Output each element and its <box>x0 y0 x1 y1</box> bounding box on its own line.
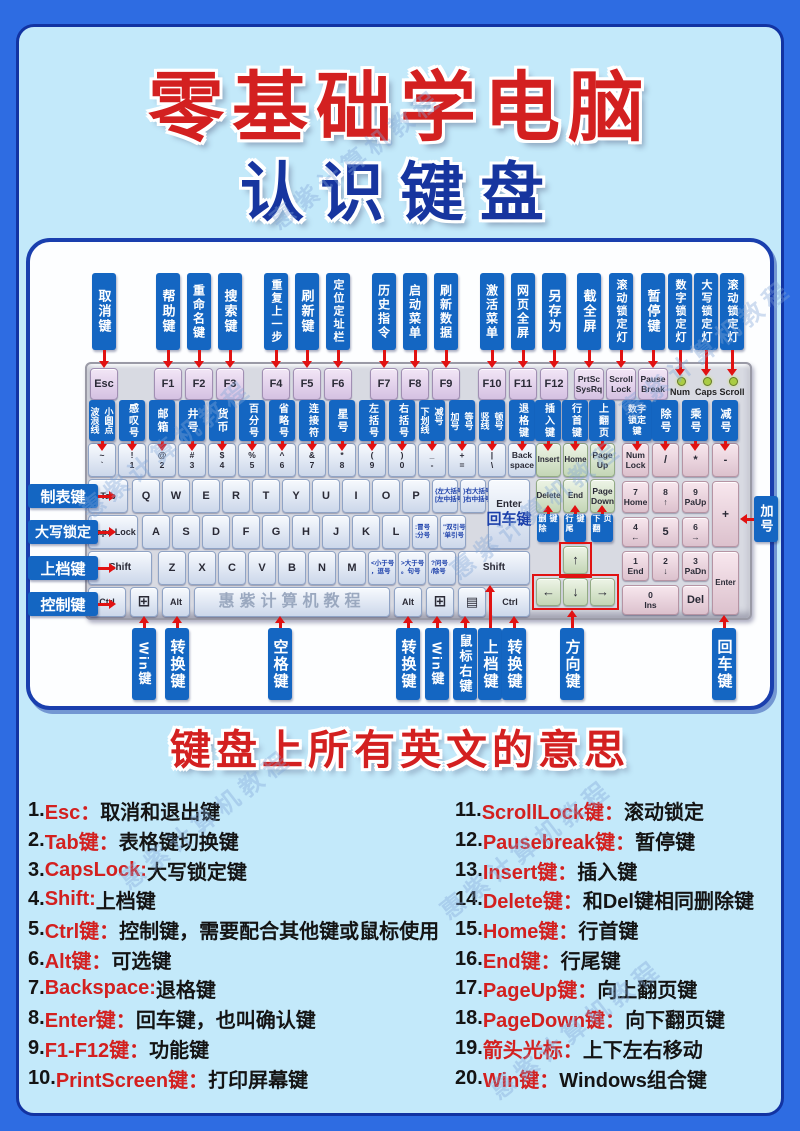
key-pause-break: PauseBreak <box>638 368 668 400</box>
key-esc: Esc <box>90 368 118 400</box>
led-scroll-label: Scroll <box>719 387 744 397</box>
label-tag-历史指令: 历史指令 <box>372 273 396 350</box>
label-tag-上档键: 上档键 <box>28 556 98 580</box>
red-arrow <box>279 616 291 628</box>
red-arrow <box>547 505 559 514</box>
red-arrow <box>176 616 188 628</box>
list-item: 4.Shift: 上档键 <box>28 885 439 915</box>
list-item: 18.PageDown键： 向下翻页键 <box>455 1004 754 1034</box>
key-b: B <box>278 551 306 585</box>
label-tag-下翻页: 下翻页 <box>591 514 613 542</box>
key-item: ⊞ <box>130 587 158 617</box>
key-f2: F2 <box>185 368 213 400</box>
key-q: Q <box>132 479 160 513</box>
red-arrow <box>588 350 600 368</box>
label-tag-滚动锁定灯: 滚动锁定灯 <box>609 273 633 350</box>
list-item: 15.Home键： 行首键 <box>455 915 754 945</box>
list-item: 7.Backspace: 退格键 <box>28 974 439 1004</box>
led-caps-label: Caps <box>695 387 717 397</box>
label-tag-左括号: 左括号 <box>359 400 385 441</box>
list-item: 8.Enter键： 回车键，也叫确认键 <box>28 1004 439 1034</box>
key-5: 5 <box>652 517 679 547</box>
label-tag-刷新键: 刷新键 <box>295 273 319 350</box>
red-arrow <box>98 495 116 507</box>
red-arrow <box>341 441 353 451</box>
list-item: 19.箭头光标： 上下左右移动 <box>455 1034 754 1064</box>
label-tag-连接符: 连接符 <box>299 400 325 441</box>
key-f8: F8 <box>401 368 429 400</box>
red-arrow <box>101 441 113 451</box>
label-tag-邮箱: 邮箱 <box>149 400 175 441</box>
key-e: E <box>192 479 220 513</box>
key-item: + <box>712 481 739 547</box>
key-j: J <box>322 515 350 549</box>
list-item: 2.Tab键： 表格键切换键 <box>28 826 439 856</box>
label-tag-另存为: 另存为 <box>542 273 566 350</box>
red-arrow <box>229 350 241 368</box>
label-tag-重复上一步: 重复上一步 <box>264 273 288 350</box>
label-tag-定位定址栏: 定位定址栏 <box>326 273 350 350</box>
red-arrow <box>167 350 179 368</box>
key-9-paup: 9PaUp <box>682 481 709 513</box>
label-tag-空格键: 空格键 <box>268 628 292 700</box>
red-arrow <box>491 350 503 368</box>
red-arrow <box>431 441 443 451</box>
label-tag-暂停键: 暂停键 <box>641 273 665 350</box>
label-tag-减号: 减号 <box>712 400 738 441</box>
key-s: S <box>172 515 200 549</box>
key-f7: F7 <box>370 368 398 400</box>
red-arrow <box>652 350 664 368</box>
key-h: H <box>292 515 320 549</box>
list-item: 13.Insert键： 插入键 <box>455 855 754 885</box>
poster: 零基础学电脑 认识键盘 键盘上所有英文的意思 1.Esc： 取消和退出键2.Ta… <box>0 0 800 1131</box>
red-arrow <box>664 441 676 451</box>
key-y: Y <box>282 479 310 513</box>
section-title: 键盘上所有英文的意思 <box>0 716 800 776</box>
led-num-label: Num <box>670 387 690 397</box>
red-arrow <box>723 615 735 628</box>
label-tag-百分号: 百分号 <box>239 400 265 441</box>
key-7-home: 7Home <box>622 481 649 513</box>
red-arrow <box>521 441 533 451</box>
label-tag-鼠标右键: 鼠标右键 <box>453 628 477 700</box>
key-t: T <box>252 479 280 513</box>
key-v: V <box>248 551 276 585</box>
red-arrow <box>401 441 413 451</box>
label-tag-行尾键: 行尾键 <box>564 514 586 542</box>
key-z: Z <box>158 551 186 585</box>
key-o: O <box>372 479 400 513</box>
red-arrow <box>281 441 293 451</box>
key-f: F <box>232 515 260 549</box>
label-tag-下划线减号: 下划线减号 <box>419 400 445 441</box>
key-x: X <box>188 551 216 585</box>
red-arrow <box>461 441 473 451</box>
list-item: 6.Alt键： 可选键 <box>28 944 439 974</box>
key-m: M <box>338 551 366 585</box>
label-tag-货币: 货币 <box>209 400 235 441</box>
key-2: 2↓ <box>652 551 679 581</box>
red-arrow <box>275 350 287 368</box>
red-arrow <box>98 567 116 579</box>
key-双引号-单引号: "双引号'单引号 <box>440 515 466 549</box>
red-arrow <box>547 441 559 451</box>
label-tag-数字锁定灯: 数字锁定灯 <box>668 273 692 350</box>
label-tag-滚动锁定灯: 滚动锁定灯 <box>720 273 744 350</box>
key-f12: F12 <box>540 368 568 400</box>
red-arrow <box>636 441 648 451</box>
key-小于号-逗号: <小于号，逗号 <box>368 551 396 585</box>
label-tag-乘号: 乘号 <box>682 400 708 441</box>
label-tag-右括号: 右括号 <box>389 400 415 441</box>
label-tag-转换键: 转换键 <box>502 628 526 700</box>
label-tag-方向键: 方向键 <box>560 628 584 700</box>
label-tag-控制键: 控制键 <box>28 592 98 616</box>
key-meanings-list-left: 1.Esc： 取消和退出键2.Tab键： 表格键切换键3.CapsLock: 大… <box>28 796 439 1093</box>
label-tag-除号: 除号 <box>652 400 678 441</box>
key-prtsc-sysrq: PrtScSysRq <box>574 368 604 400</box>
label-tag-网页全屏: 网页全屏 <box>511 273 535 350</box>
key-f1: F1 <box>154 368 182 400</box>
label-tag-删除键: 删除键 <box>537 514 559 542</box>
key-左大括号-左中括号: {左大括号[左中括号 <box>432 479 458 513</box>
red-arrow <box>407 616 419 628</box>
red-arrow <box>740 518 754 530</box>
red-arrow <box>731 350 743 376</box>
key-右大括号-右中括号: }右大括号]右中括号 <box>460 479 486 513</box>
led-num-indicator <box>677 377 686 386</box>
key-0-ins: 0Ins <box>622 585 679 615</box>
arrow-keys-highlight <box>532 574 619 610</box>
red-arrow <box>574 441 586 451</box>
list-item: 1.Esc： 取消和退出键 <box>28 796 439 826</box>
red-arrow <box>724 441 736 451</box>
red-arrow <box>694 441 706 451</box>
label-tag-启动菜单: 启动菜单 <box>403 273 427 350</box>
red-arrow <box>445 350 457 368</box>
key-f9: F9 <box>432 368 460 400</box>
key-冒号-分号: :冒号;分号 <box>412 515 438 549</box>
red-arrow <box>414 350 426 368</box>
key-shift: Shift <box>458 551 530 585</box>
red-arrow <box>251 441 263 451</box>
red-arrow <box>601 505 613 514</box>
label-tag-省略号: 省略号 <box>269 400 295 441</box>
red-arrow <box>571 610 583 628</box>
label-tag-转换键: 转换键 <box>396 628 420 700</box>
red-arrow <box>436 616 448 628</box>
key-enter-回车键: Enter回车键 <box>488 479 530 549</box>
key-u: U <box>312 479 340 513</box>
red-arrow <box>705 350 717 376</box>
red-arrow <box>337 350 349 368</box>
label-tag-感叹号: 感叹号 <box>119 400 145 441</box>
key-n: N <box>308 551 336 585</box>
red-arrow <box>489 585 501 628</box>
label-tag-井号: 井号 <box>179 400 205 441</box>
label-tag-星号: 星号 <box>329 400 355 441</box>
red-arrow <box>522 350 534 368</box>
label-tag-win键: Win键 <box>425 628 449 700</box>
key-item: ⊞ <box>426 587 454 617</box>
key-f10: F10 <box>478 368 506 400</box>
key-f3: F3 <box>216 368 244 400</box>
list-item: 9.F1-F12键： 功能键 <box>28 1034 439 1064</box>
red-arrow <box>191 441 203 451</box>
red-arrow <box>98 531 116 543</box>
red-arrow <box>383 350 395 368</box>
label-tag-重命名键: 重命名键 <box>187 273 211 350</box>
key-meanings-list-right: 11.ScrollLock键： 滚动锁定12.Pausebreak键： 暂停键1… <box>455 796 754 1093</box>
key-f11: F11 <box>509 368 537 400</box>
red-arrow <box>491 441 503 451</box>
key-alt: Alt <box>394 587 422 617</box>
list-item: 10.PrintScreen键： 打印屏幕键 <box>28 1063 439 1093</box>
label-tag-win键: Win键 <box>132 628 156 700</box>
key-p: P <box>402 479 430 513</box>
key-1-end: 1End <box>622 551 649 581</box>
label-tag-加号等号: 加号等号 <box>449 400 475 441</box>
label-tag-激活菜单: 激活菜单 <box>480 273 504 350</box>
key-a: A <box>142 515 170 549</box>
list-item: 3.CapsLock: 大写锁定键 <box>28 855 439 885</box>
label-tag-上档键: 上档键 <box>478 628 502 700</box>
list-item: 20.Win键： Windows组合键 <box>455 1063 754 1093</box>
label-tag-搜索键: 搜索键 <box>218 273 242 350</box>
key-问号-除号: ?问号/除号 <box>428 551 456 585</box>
red-arrow <box>371 441 383 451</box>
list-item: 11.ScrollLock键： 滚动锁定 <box>455 796 754 826</box>
red-arrow <box>306 350 318 368</box>
arrow-keys-highlight <box>559 542 592 578</box>
red-arrow <box>98 603 116 615</box>
red-arrow <box>553 350 565 368</box>
key-scroll-lock: ScrollLock <box>606 368 636 400</box>
key-item: ▤ <box>458 587 486 617</box>
red-arrow <box>161 441 173 451</box>
label-tag-退格键: 退格键 <box>509 400 535 441</box>
label-tag-波浪线小圆点: 波浪线小圆点 <box>89 400 115 441</box>
label-tag-大写锁定灯: 大写锁定灯 <box>694 273 718 350</box>
sub-title: 认识键盘 <box>0 142 800 234</box>
label-tag-上翻页: 上翻页 <box>589 400 615 441</box>
led-caps-indicator <box>703 377 712 386</box>
label-tag-转换键: 转换键 <box>165 628 189 700</box>
red-arrow <box>198 350 210 368</box>
key-d: D <box>202 515 230 549</box>
red-arrow <box>679 350 691 376</box>
key-c: C <box>218 551 246 585</box>
key-3-padn: 3PaDn <box>682 551 709 581</box>
list-item: 14.Delete键： 和Del键相同删除键 <box>455 885 754 915</box>
label-tag-大写锁定: 大写锁定 <box>28 520 98 544</box>
key-k: K <box>352 515 380 549</box>
list-item: 12.Pausebreak键： 暂停键 <box>455 826 754 856</box>
key-惠紫计算机教程: 惠紫计算机教程 <box>194 587 390 617</box>
label-tag-数字锁定键: 数字锁定键 <box>622 400 652 441</box>
red-arrow <box>311 441 323 451</box>
key-enter: Enter <box>712 551 739 615</box>
label-tag-加号: 加号 <box>754 496 778 542</box>
main-title: 零基础学电脑 <box>0 46 800 156</box>
red-arrow <box>103 350 115 368</box>
label-tag-竖线顿号: 竖线顿号 <box>479 400 505 441</box>
key-g: G <box>262 515 290 549</box>
key-f6: F6 <box>324 368 352 400</box>
key-i: I <box>342 479 370 513</box>
red-arrow <box>464 616 476 628</box>
red-arrow <box>131 441 143 451</box>
label-tag-截全屏: 截全屏 <box>577 273 601 350</box>
label-tag-刷新数据: 刷新数据 <box>434 273 458 350</box>
red-arrow <box>513 616 525 628</box>
label-tag-回车键: 回车键 <box>712 628 736 700</box>
key-4: 4← <box>622 517 649 547</box>
key-w: W <box>162 479 190 513</box>
key-6: 6→ <box>682 517 709 547</box>
label-tag-制表键: 制表键 <box>28 484 98 508</box>
key-r: R <box>222 479 250 513</box>
key-alt: Alt <box>162 587 190 617</box>
label-tag-帮助键: 帮助键 <box>156 273 180 350</box>
key-8: 8↑ <box>652 481 679 513</box>
red-arrow <box>574 505 586 514</box>
key-del: Del <box>682 585 709 615</box>
list-item: 17.PageUp键： 向上翻页键 <box>455 974 754 1004</box>
key-l: L <box>382 515 410 549</box>
key-f4: F4 <box>262 368 290 400</box>
red-arrow <box>620 350 632 368</box>
label-tag-取消键: 取消键 <box>92 273 116 350</box>
list-item: 16.End键： 行尾键 <box>455 944 754 974</box>
label-tag-插入键: 插入键 <box>535 400 561 441</box>
red-arrow <box>143 616 155 628</box>
label-tag-行首键: 行首键 <box>562 400 588 441</box>
red-arrow <box>601 441 613 451</box>
key-f5: F5 <box>293 368 321 400</box>
key-大于号-句号: >大于号。句号 <box>398 551 426 585</box>
list-item: 5.Ctrl键： 控制键，需要配合其他键或鼠标使用 <box>28 915 439 945</box>
led-scroll-indicator <box>729 377 738 386</box>
red-arrow <box>221 441 233 451</box>
